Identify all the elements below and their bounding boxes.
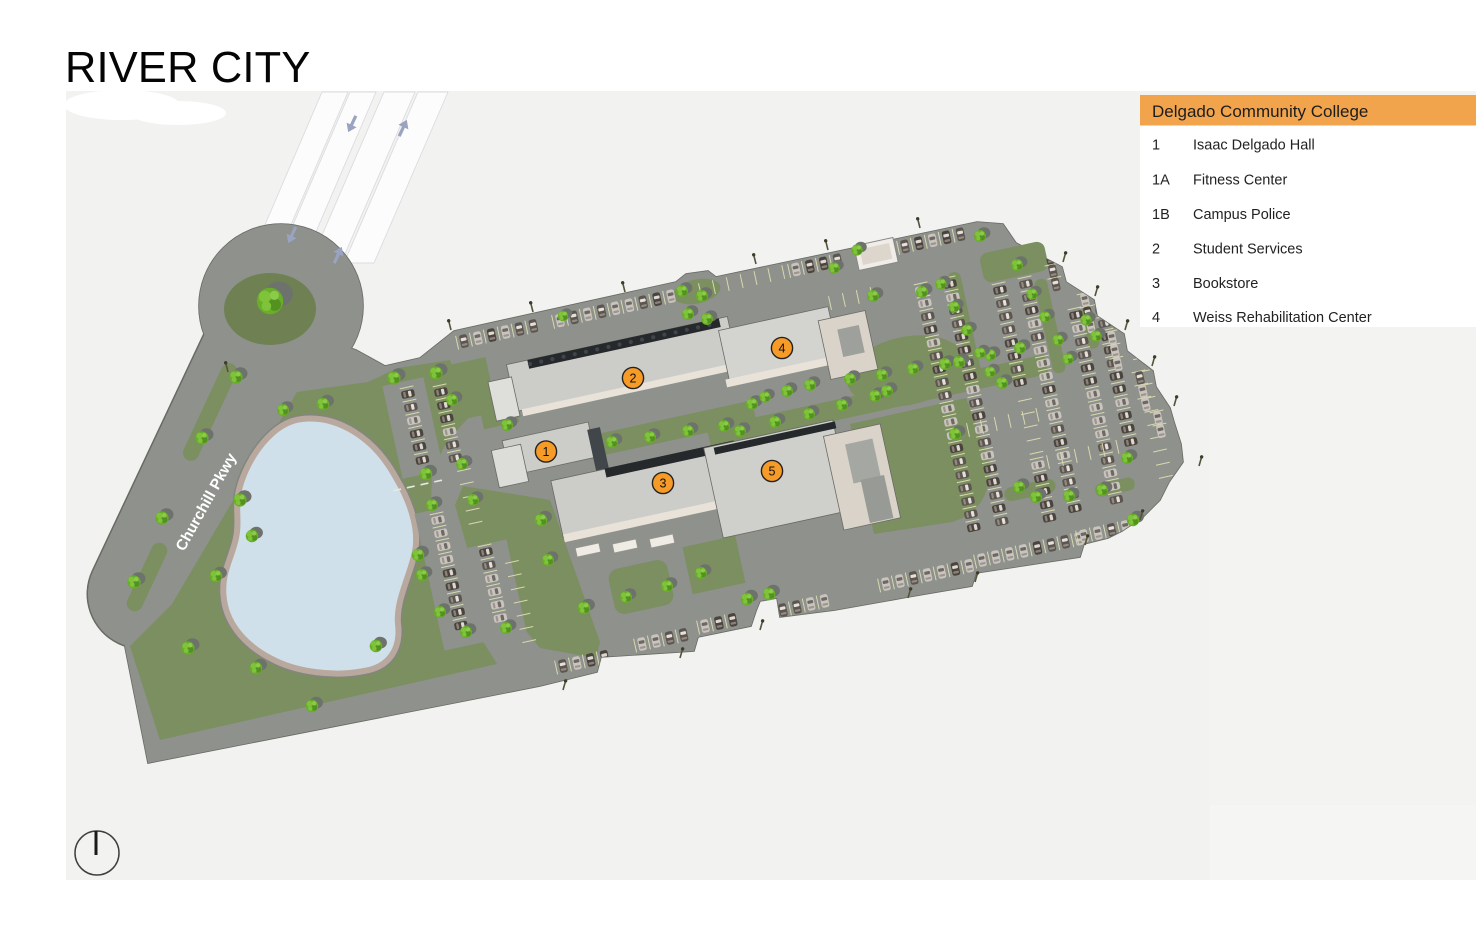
svg-text:Weiss Rehabilitation Center: Weiss Rehabilitation Center (1193, 310, 1372, 326)
svg-text:Student Services: Student Services (1193, 242, 1303, 258)
svg-text:2: 2 (630, 372, 637, 386)
svg-text:5: 5 (769, 465, 776, 479)
svg-text:RIVER CITY: RIVER CITY (65, 44, 311, 92)
svg-text:1B: 1B (1152, 207, 1170, 223)
svg-text:Isaac Delgado Hall: Isaac Delgado Hall (1193, 138, 1315, 154)
svg-text:Fitness Center: Fitness Center (1193, 173, 1287, 189)
svg-text:4: 4 (1152, 310, 1160, 326)
svg-text:Campus Police: Campus Police (1193, 207, 1291, 223)
svg-text:Bookstore: Bookstore (1193, 276, 1258, 292)
svg-text:3: 3 (660, 477, 667, 491)
svg-text:1: 1 (543, 445, 550, 459)
svg-text:1A: 1A (1152, 173, 1170, 189)
svg-text:Delgado Community College: Delgado Community College (1152, 102, 1368, 121)
svg-text:1: 1 (1152, 138, 1160, 154)
svg-text:2: 2 (1152, 242, 1160, 258)
svg-text:3: 3 (1152, 276, 1160, 292)
svg-text:4: 4 (779, 342, 786, 356)
